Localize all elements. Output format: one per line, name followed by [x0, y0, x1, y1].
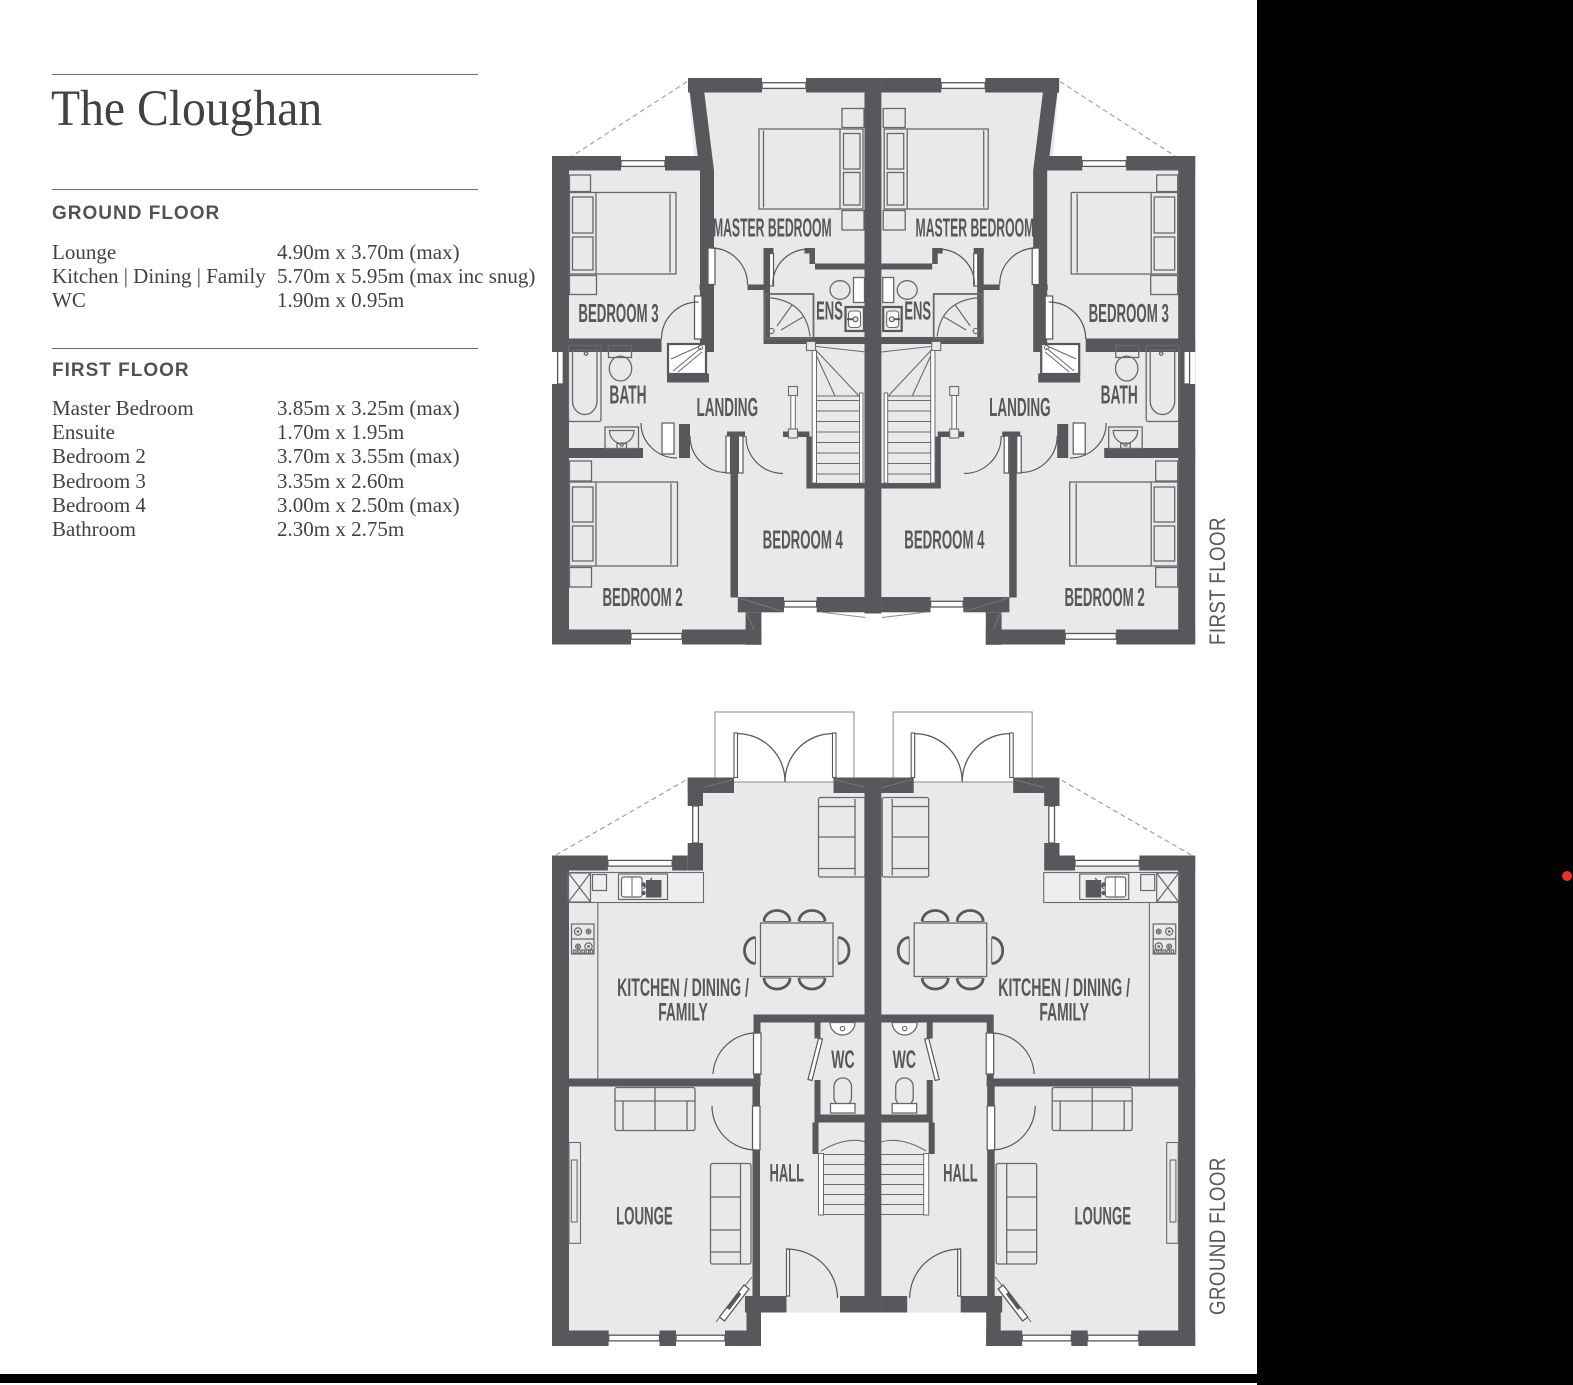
svg-text:ENS: ENS: [816, 297, 843, 326]
svg-text:FAMILY: FAMILY: [1039, 999, 1089, 1026]
svg-text:BEDROOM 2: BEDROOM 2: [602, 583, 682, 612]
svg-text:BATH: BATH: [609, 381, 646, 410]
svg-text:MASTER BEDROOM: MASTER BEDROOM: [916, 215, 1035, 243]
svg-text:HALL: HALL: [769, 1160, 804, 1188]
svg-text:BEDROOM 4: BEDROOM 4: [763, 526, 844, 555]
svg-text:FIRST FLOOR: FIRST FLOOR: [1207, 517, 1231, 645]
svg-text:LANDING: LANDING: [697, 393, 759, 422]
svg-text:BEDROOM 2: BEDROOM 2: [1064, 583, 1144, 612]
svg-text:KITCHEN / DINING /: KITCHEN / DINING /: [998, 975, 1130, 1002]
svg-text:FAMILY: FAMILY: [658, 999, 708, 1026]
svg-text:KITCHEN / DINING /: KITCHEN / DINING /: [617, 975, 749, 1002]
svg-text:HALL: HALL: [943, 1160, 978, 1188]
svg-text:GROUND FLOOR: GROUND FLOOR: [1207, 1157, 1231, 1315]
svg-text:BEDROOM 3: BEDROOM 3: [1089, 299, 1169, 328]
svg-text:BEDROOM 3: BEDROOM 3: [578, 299, 658, 328]
svg-text:BEDROOM 4: BEDROOM 4: [904, 526, 985, 555]
svg-text:WC: WC: [893, 1047, 917, 1074]
svg-text:LOUNGE: LOUNGE: [616, 1203, 673, 1230]
svg-text:BATH: BATH: [1101, 381, 1138, 410]
svg-text:MASTER BEDROOM: MASTER BEDROOM: [713, 215, 832, 243]
svg-text:WC: WC: [831, 1047, 855, 1074]
svg-text:LOUNGE: LOUNGE: [1074, 1203, 1131, 1230]
svg-text:LANDING: LANDING: [989, 393, 1051, 422]
svg-text:ENS: ENS: [904, 297, 931, 326]
